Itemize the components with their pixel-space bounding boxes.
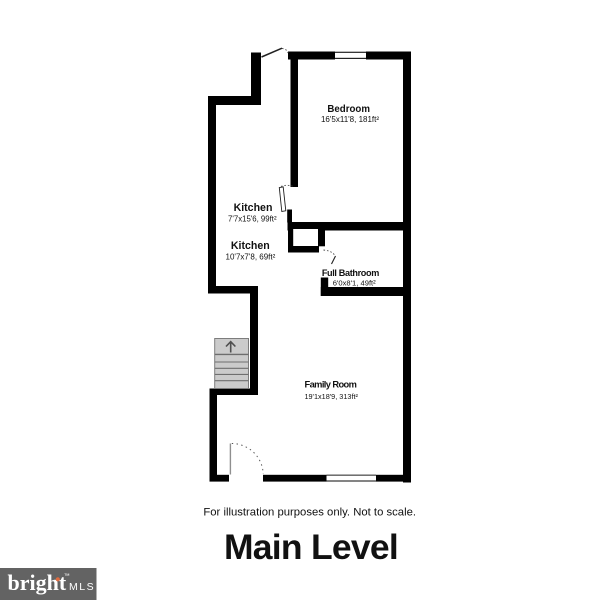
svg-text:For illustration purposes only: For illustration purposes only. Not to s… — [203, 506, 416, 518]
svg-text:MLS: MLS — [69, 581, 95, 593]
svg-text:19'1x18'9, 313ft²: 19'1x18'9, 313ft² — [304, 392, 358, 401]
svg-text:Kitchen: Kitchen — [231, 240, 270, 252]
svg-text:Family Room: Family Room — [305, 379, 357, 389]
svg-text:6'0x8'1, 49ft²: 6'0x8'1, 49ft² — [333, 279, 376, 288]
svg-text:Bedroom: Bedroom — [327, 104, 370, 115]
svg-text:Main Level: Main Level — [224, 527, 398, 567]
svg-text:™: ™ — [64, 573, 70, 580]
svg-text:Kitchen: Kitchen — [234, 202, 273, 214]
svg-text:10'7x7'8, 69ft²: 10'7x7'8, 69ft² — [226, 253, 276, 262]
svg-text:7'7x15'6, 99ft²: 7'7x15'6, 99ft² — [228, 215, 277, 224]
svg-text:16'5x11'8, 181ft²: 16'5x11'8, 181ft² — [321, 115, 379, 124]
svg-text:bright: bright — [8, 570, 67, 595]
svg-text:Full Bathroom: Full Bathroom — [322, 268, 379, 278]
